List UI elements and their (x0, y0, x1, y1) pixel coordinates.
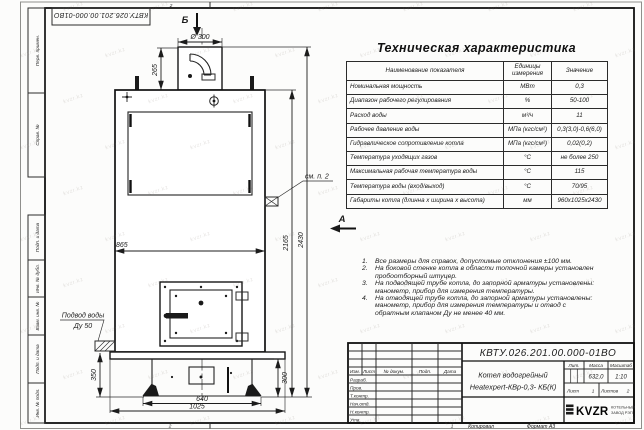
svg-text:см. п. 2: см. п. 2 (305, 174, 329, 181)
sig-label: Разраб. (350, 377, 367, 382)
strip-label: Подп. и дата (35, 344, 40, 374)
spec-units: °С (504, 151, 552, 165)
strip-label: Подп. и дата (35, 222, 40, 252)
strip-label: Инв. № дубл. (35, 264, 40, 293)
tech-characteristics-title: Техническая характеристика (346, 41, 607, 55)
spec-units: °С (504, 166, 552, 180)
logo-caption-2: ЗАВОД РЭП (611, 411, 633, 415)
lifting-lug (250, 76, 254, 90)
spec-value: 11 (552, 109, 608, 123)
spec-units: МПа (кгс/см²) (504, 123, 552, 137)
spec-units: мм (504, 194, 552, 208)
dim-body-height: 2165 (265, 90, 296, 397)
notes-list: 1.Все размеры для справок, допустимые от… (362, 258, 596, 317)
tech-characteristics-table: Наименование показателяЕдиницы измерения… (346, 61, 608, 209)
spec-name: Номинальная мощность (347, 81, 504, 95)
sig-label: Утв. (350, 417, 361, 422)
engineering-drawing-sheet: 2 2 1 Копировал Формат А3 Перв. примен. … (0, 0, 644, 430)
spec-units: % (504, 95, 552, 109)
spec-row: Гидравлическое сопротивление котлаМПа (к… (347, 137, 608, 151)
doc-number: КВТУ.026.201.00.000-01ВО (480, 348, 617, 359)
note-item: 2.На боковой стенке котла в области топо… (362, 265, 596, 280)
svg-text:1025: 1025 (189, 404, 205, 411)
callout-see-note-2: см. п. 2 (277, 174, 333, 199)
lifting-lug (135, 76, 139, 90)
spec-value: 0,3(3,0)-0,6(6,0) (552, 123, 608, 137)
spec-row: Температура воды (вход/выход)°С70/95 (347, 180, 608, 194)
spec-units: м³/ч (504, 109, 552, 123)
spec-units: МВт (504, 81, 552, 95)
spec-units: МПа (кгс/см²) (504, 137, 552, 151)
change-col: Дата (443, 369, 457, 374)
spec-row: Номинальная мощностьМВт0,3 (347, 81, 608, 95)
spec-row: Рабочее давление водыМПа (кгс/см²)0,3(3,… (347, 123, 608, 137)
change-col: Подп. (419, 369, 431, 374)
spec-row: Температура уходящих газов°Сне более 250 (347, 151, 608, 165)
spec-name: Расход воды (347, 109, 504, 123)
note-item: 3.На подводящей трубе котла, до запорной… (362, 280, 596, 295)
zone-number-bottom: 2 (168, 424, 172, 429)
svg-text:640: 640 (196, 396, 208, 403)
spec-value: 115 (552, 166, 608, 180)
view-a-label: А (338, 214, 346, 225)
furnace-door (160, 282, 248, 346)
note-item: 4.На отводящей трубе котла, до запорной … (362, 295, 596, 317)
spec-units: °С (504, 180, 552, 194)
copied-label: Копировал (468, 424, 494, 430)
spec-name: Гидравлическое сопротивление котла (347, 137, 504, 151)
logo-text: KVZR (576, 406, 609, 418)
mass-label: Масса (589, 363, 603, 368)
col-header-0: Наименование показателя (347, 62, 504, 81)
svg-text:Ø 300: Ø 300 (189, 34, 209, 41)
svg-text:2430: 2430 (298, 232, 305, 249)
col-header-1: Единицы измерения (504, 62, 552, 81)
spec-name: Температура уходящих газов (347, 151, 504, 165)
spec-value: 70/95 (552, 180, 608, 194)
change-col: Изм. (350, 369, 360, 374)
strip-label: Справ. № (35, 124, 40, 145)
ash-opening (189, 367, 214, 384)
dim-base-height: 300 (261, 359, 312, 397)
scale-value: 1:10 (615, 375, 627, 381)
sheets-label: Листов (600, 389, 619, 394)
strip-label: Инв. № подл. (35, 388, 40, 417)
chimney-duct (178, 47, 222, 90)
spec-row: Диапазон рабочего регулирования%50-100 (347, 95, 608, 109)
product-name-line1: Котел водогрейный (478, 371, 547, 380)
svg-text:300: 300 (282, 372, 289, 384)
title-block: Изм. Лист № докум. Подп. Дата Разраб. Пр… (348, 343, 635, 423)
scale-label: Масштаб (610, 363, 632, 368)
svg-text:Ду 50: Ду 50 (73, 323, 92, 330)
strip-label: Взам. инв. № (35, 302, 40, 331)
spec-name: Габариты котла (длинна х ширина х высота… (347, 194, 504, 208)
top-doc-number: КВТУ.026.201.00.000-01ВО (54, 11, 149, 18)
spec-value: 960х1025х2430 (552, 194, 608, 208)
top-doc-number-box: КВТУ.026.201.00.000-01ВО (52, 8, 150, 25)
logo-caption-1: КОТЕЛЬНЫЙ (611, 406, 635, 410)
spec-value: 0,02(0,2) (552, 137, 608, 151)
spec-name: Температура воды (вход/выход) (347, 180, 504, 194)
sheets-value: 2 (626, 389, 630, 394)
water-inlet-label: Подвод воды Ду 50 (60, 312, 105, 342)
base-plate (110, 352, 285, 359)
svg-text:865: 865 (116, 242, 128, 249)
door-handle (166, 313, 188, 319)
lit-label: Лит. (568, 363, 580, 368)
sig-label: Т.контр. (350, 393, 369, 398)
spec-name: Максимальная рабочая температура воды (347, 166, 504, 180)
svg-text:265: 265 (152, 64, 159, 77)
format-label: Формат А3 (527, 424, 555, 430)
spec-value: 50-100 (552, 95, 608, 109)
left-margin-strip: Перв. примен. Справ. № Подп. и дата Инв.… (28, 8, 45, 423)
sig-label: Пров. (350, 385, 362, 390)
spec-row: Габариты котла (длинна х ширина х высота… (347, 194, 608, 208)
zone-number-right: 1 (451, 424, 454, 429)
logo-bars-icon (566, 405, 574, 408)
product-name-line2: Heatexpert-КВр-0,3- КБ(К) (470, 383, 557, 392)
svg-text:350: 350 (91, 369, 98, 381)
dim-chimney-height: 265 (152, 48, 178, 90)
sig-label: Н.контр. (350, 409, 370, 414)
spec-value: 0,3 (552, 81, 608, 95)
sig-label: Нач.отд. (350, 401, 370, 406)
dim-chimney-diameter: Ø 300 (178, 34, 222, 46)
col-header-2: Значение (552, 62, 608, 81)
spec-name: Диапазон рабочего регулирования (347, 95, 504, 109)
spec-row: Расход водым³/ч11 (347, 109, 608, 123)
svg-text:Подвод воды: Подвод воды (62, 312, 105, 320)
spec-name: Рабочее давление воды (347, 123, 504, 137)
svg-text:2165: 2165 (283, 235, 290, 252)
door-peephole (199, 301, 204, 306)
change-col: Лист (362, 369, 375, 374)
sheet-value: 1 (592, 389, 595, 394)
mass-value: 632,0 (588, 375, 604, 381)
table-header-row: Наименование показателяЕдиницы измерения… (347, 62, 608, 81)
water-inlet-stub (95, 341, 115, 351)
sampling-fitting (265, 197, 278, 206)
strip-label: Перв. примен. (35, 35, 40, 66)
view-b-label: Б (182, 15, 189, 26)
spec-value: не более 250 (552, 151, 608, 165)
kvzr-logo: KVZR КОТЕЛЬНЫЙ ЗАВОД РЭП (566, 405, 635, 419)
sheet-label: Лист (566, 389, 579, 394)
boiler-front-view: Б Ø 300 265 (60, 13, 356, 413)
zone-number-top: 2 (169, 3, 173, 8)
view-b-arrow: Б (182, 13, 201, 36)
spec-row: Максимальная рабочая температура воды°С1… (347, 166, 608, 180)
change-col: № докум. (384, 369, 405, 374)
view-a-arrow: А (330, 214, 356, 233)
